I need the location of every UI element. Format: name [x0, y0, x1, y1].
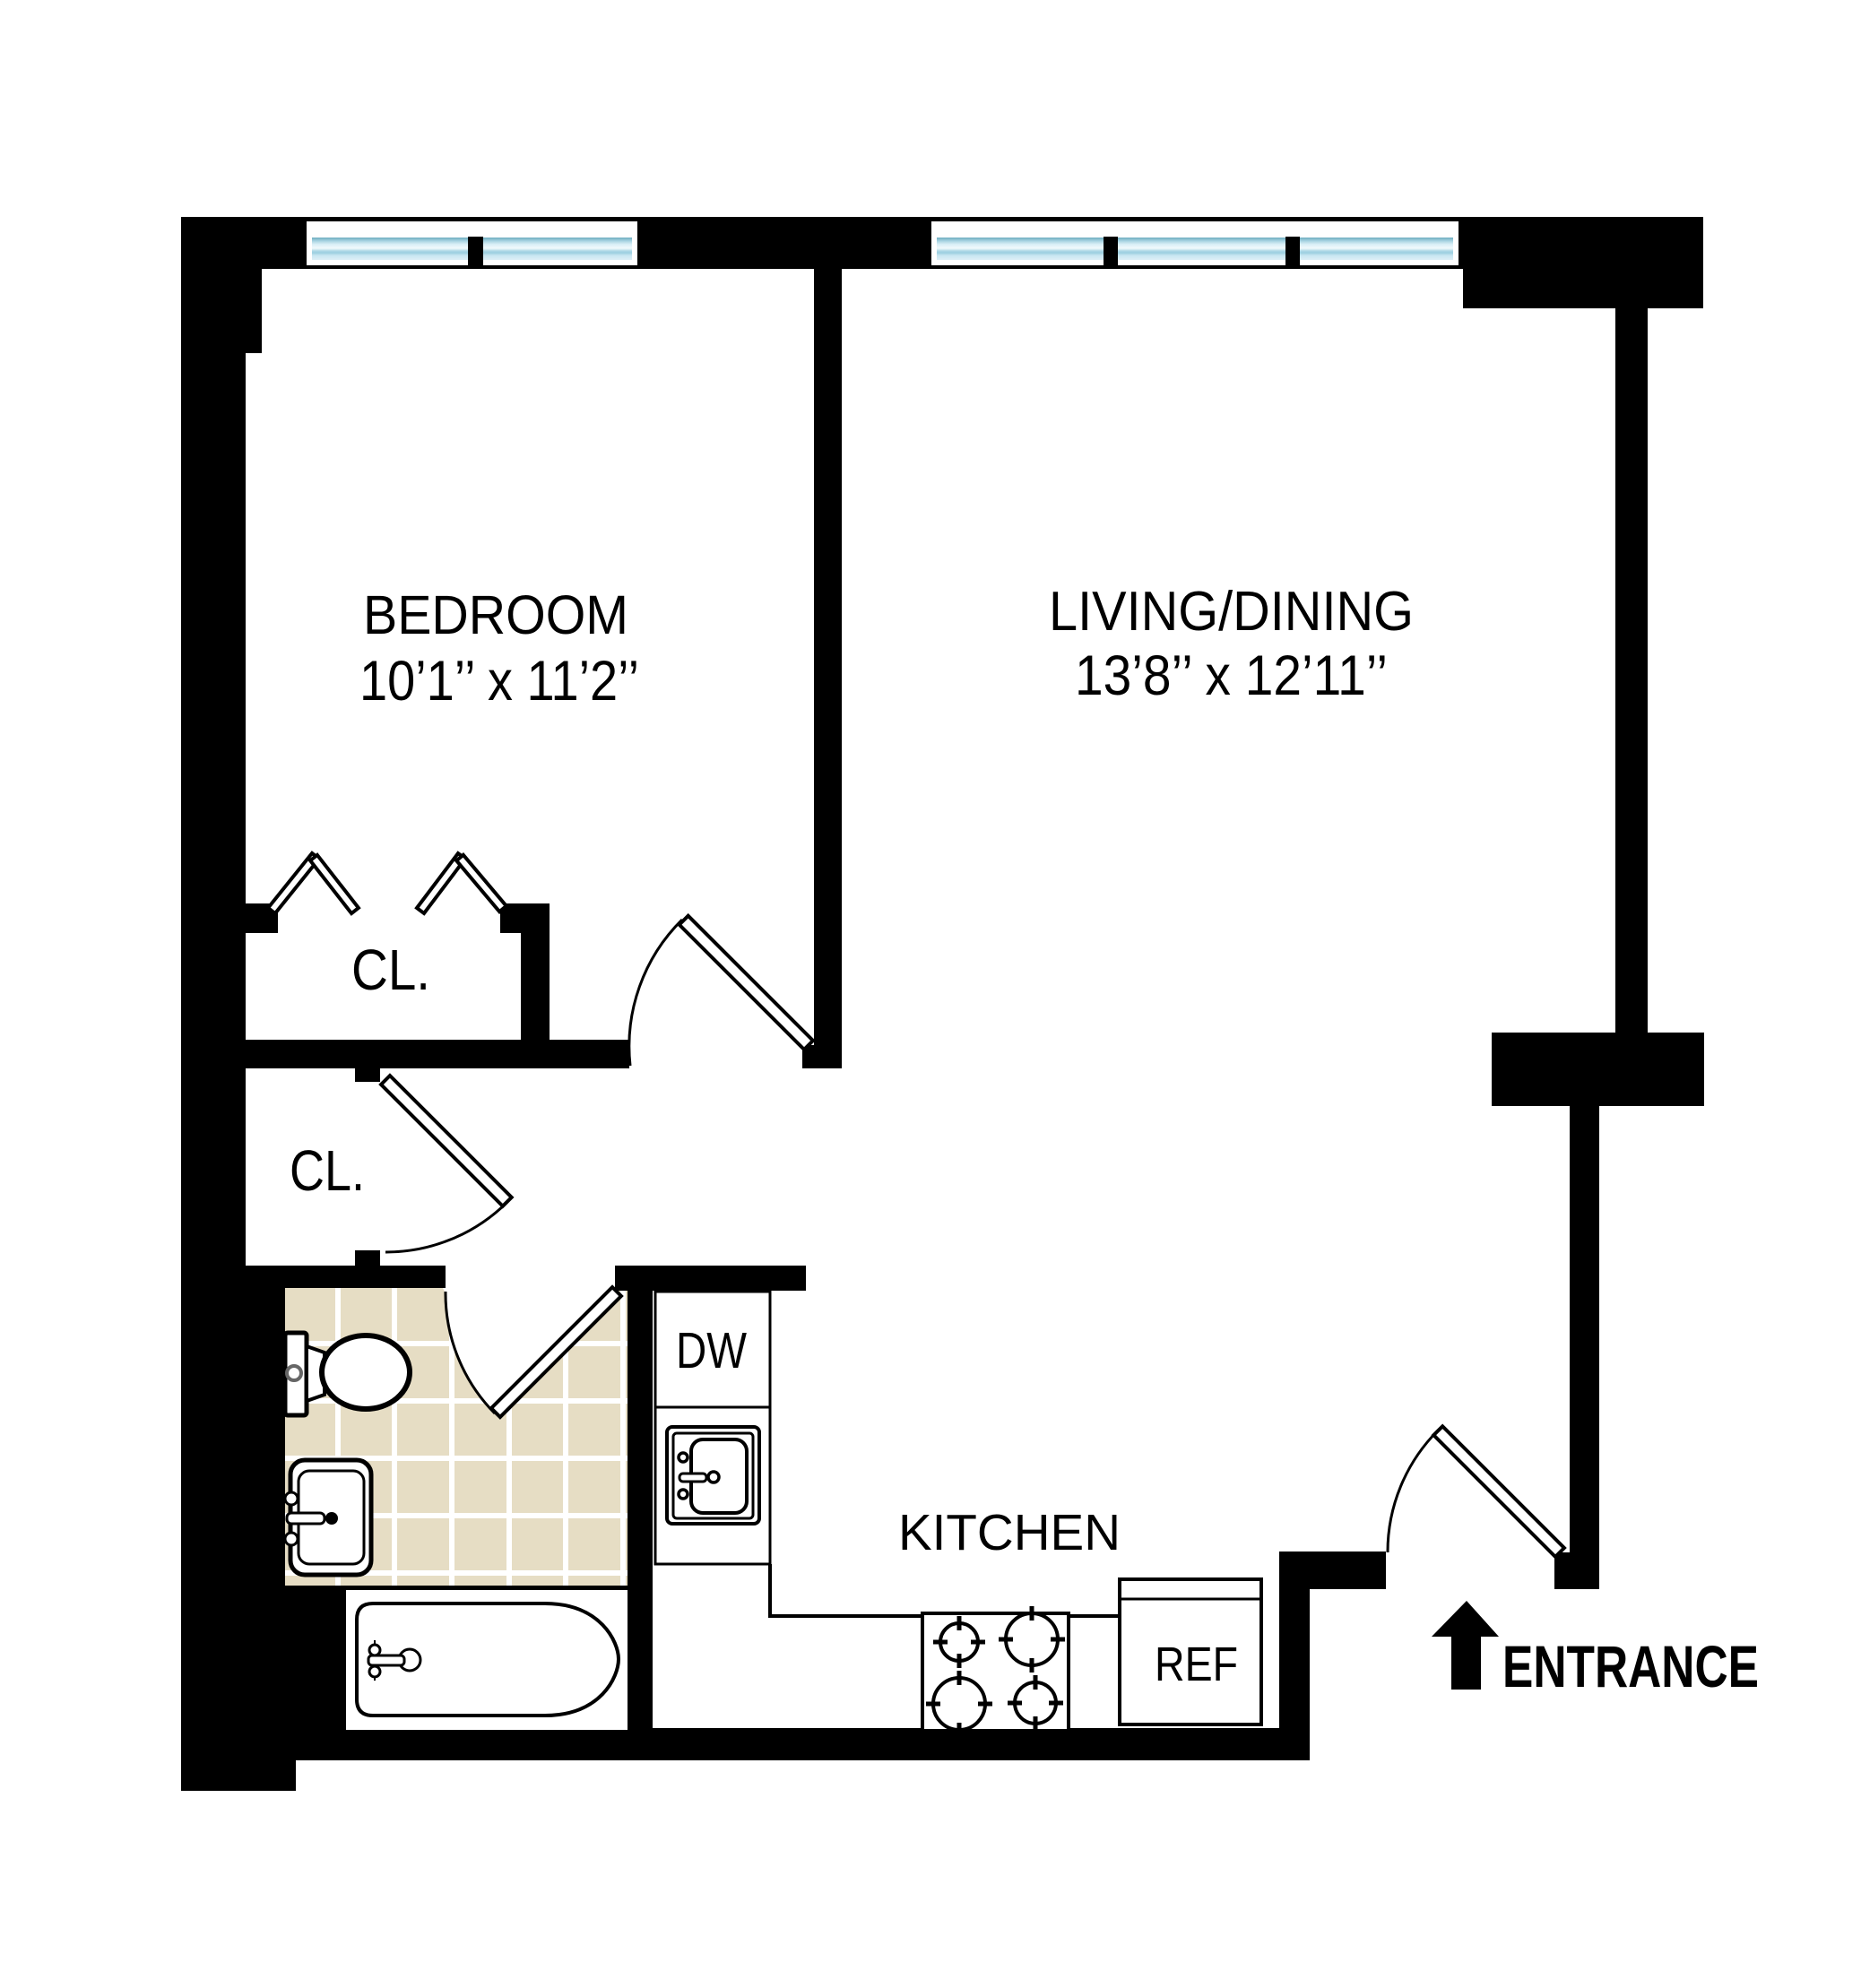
svg-text:KITCHEN: KITCHEN: [898, 1504, 1121, 1561]
svg-text:DW: DW: [676, 1322, 747, 1379]
svg-text:CL.: CL.: [290, 1138, 365, 1203]
svg-text:10’1’’ x 11’2’’: 10’1’’ x 11’2’’: [359, 650, 639, 713]
svg-text:CL.: CL.: [351, 938, 430, 1002]
svg-text:BEDROOM: BEDROOM: [363, 584, 628, 645]
svg-text:ENTRANCE: ENTRANCE: [1502, 1633, 1759, 1699]
svg-text:13’8’’ x 12’11’’: 13’8’’ x 12’11’’: [1075, 644, 1388, 707]
svg-text:REF: REF: [1155, 1638, 1238, 1691]
svg-text:LIVING/DINING: LIVING/DINING: [1049, 581, 1414, 643]
